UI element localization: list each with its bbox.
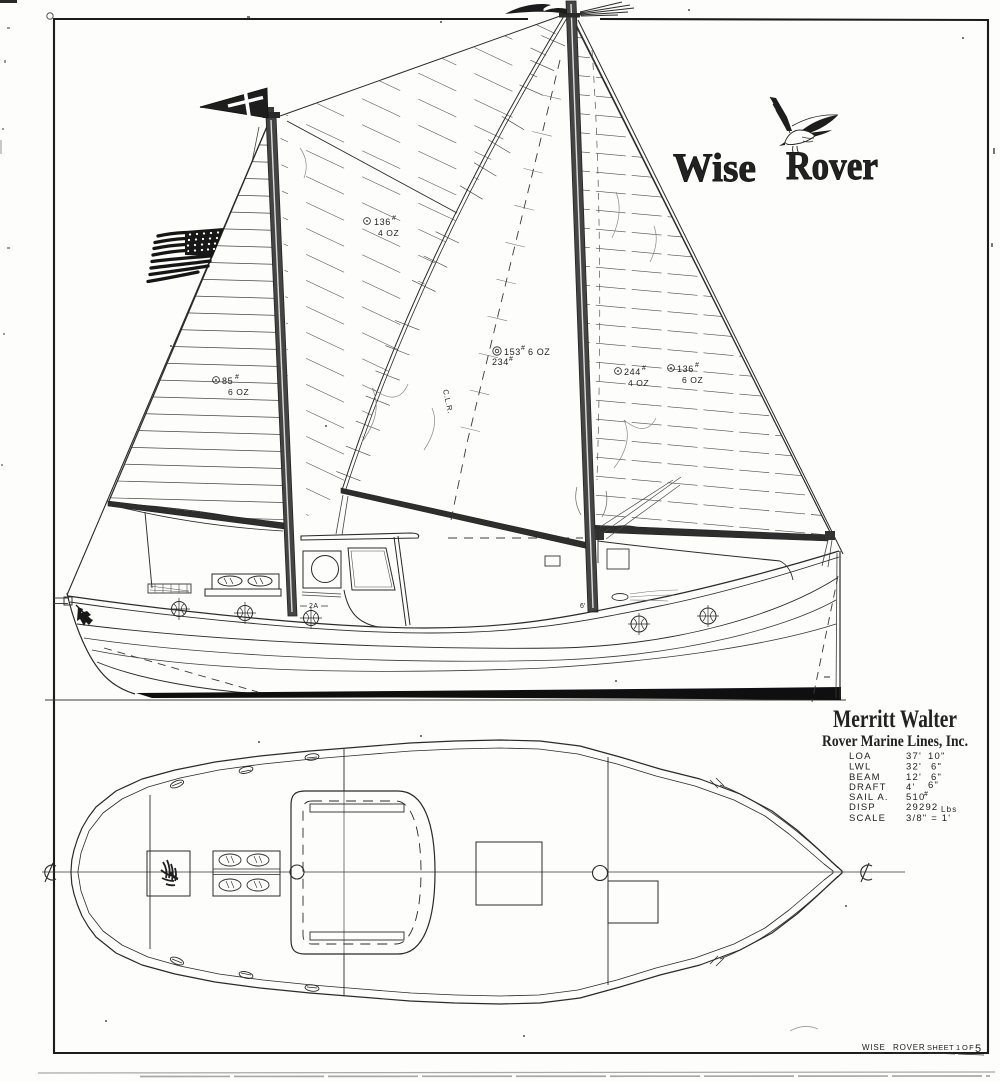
svg-text:SCALE: SCALE	[849, 813, 886, 824]
svg-text:5: 5	[975, 1043, 982, 1055]
svg-text:#: #	[509, 356, 514, 363]
svg-text:#: #	[235, 374, 240, 381]
svg-text:Rover Marine Lines, Inc.: Rover Marine Lines, Inc.	[822, 733, 968, 750]
svg-text:244: 244	[624, 367, 641, 377]
svg-text:3/8" = 1': 3/8" = 1'	[906, 813, 951, 824]
svg-text:6": 6"	[931, 762, 942, 773]
svg-text:OF: OF	[962, 1043, 975, 1052]
svg-text:Wise: Wise	[673, 145, 756, 190]
svg-text:85: 85	[222, 376, 233, 386]
svg-text:29292: 29292	[906, 802, 938, 813]
svg-text:SHEET: SHEET	[927, 1043, 954, 1052]
svg-text:32': 32'	[906, 762, 922, 773]
svg-text:1: 1	[956, 1043, 961, 1052]
svg-text:6 OZ: 6 OZ	[682, 375, 703, 385]
svg-text:ROVER: ROVER	[893, 1043, 925, 1052]
svg-text:#: #	[695, 362, 700, 369]
svg-text:WISE: WISE	[862, 1043, 886, 1052]
svg-text:#: #	[521, 345, 526, 352]
svg-text:234: 234	[492, 357, 509, 367]
svg-text:4 OZ: 4 OZ	[628, 378, 649, 388]
svg-text:LWL: LWL	[849, 762, 871, 773]
svg-text:Rover: Rover	[786, 143, 878, 188]
svg-text:6 OZ: 6 OZ	[528, 347, 550, 357]
svg-text:6": 6"	[928, 780, 939, 791]
svg-text:136: 136	[677, 364, 694, 374]
svg-text:#: #	[392, 215, 397, 222]
svg-text:LOA: LOA	[849, 751, 872, 762]
svg-text:DISP: DISP	[849, 802, 876, 813]
svg-text:10": 10"	[928, 751, 946, 762]
svg-text:Merritt Walter: Merritt Walter	[833, 706, 957, 733]
svg-text:#: #	[924, 791, 929, 798]
svg-text:#: #	[642, 365, 647, 372]
svg-text:37': 37'	[906, 751, 922, 762]
svg-text:2A: 2A	[309, 603, 319, 610]
svg-text:4 OZ: 4 OZ	[378, 228, 399, 238]
svg-text:136: 136	[374, 217, 391, 227]
svg-text:6 OZ: 6 OZ	[228, 387, 249, 397]
svg-text:6': 6'	[580, 603, 585, 610]
